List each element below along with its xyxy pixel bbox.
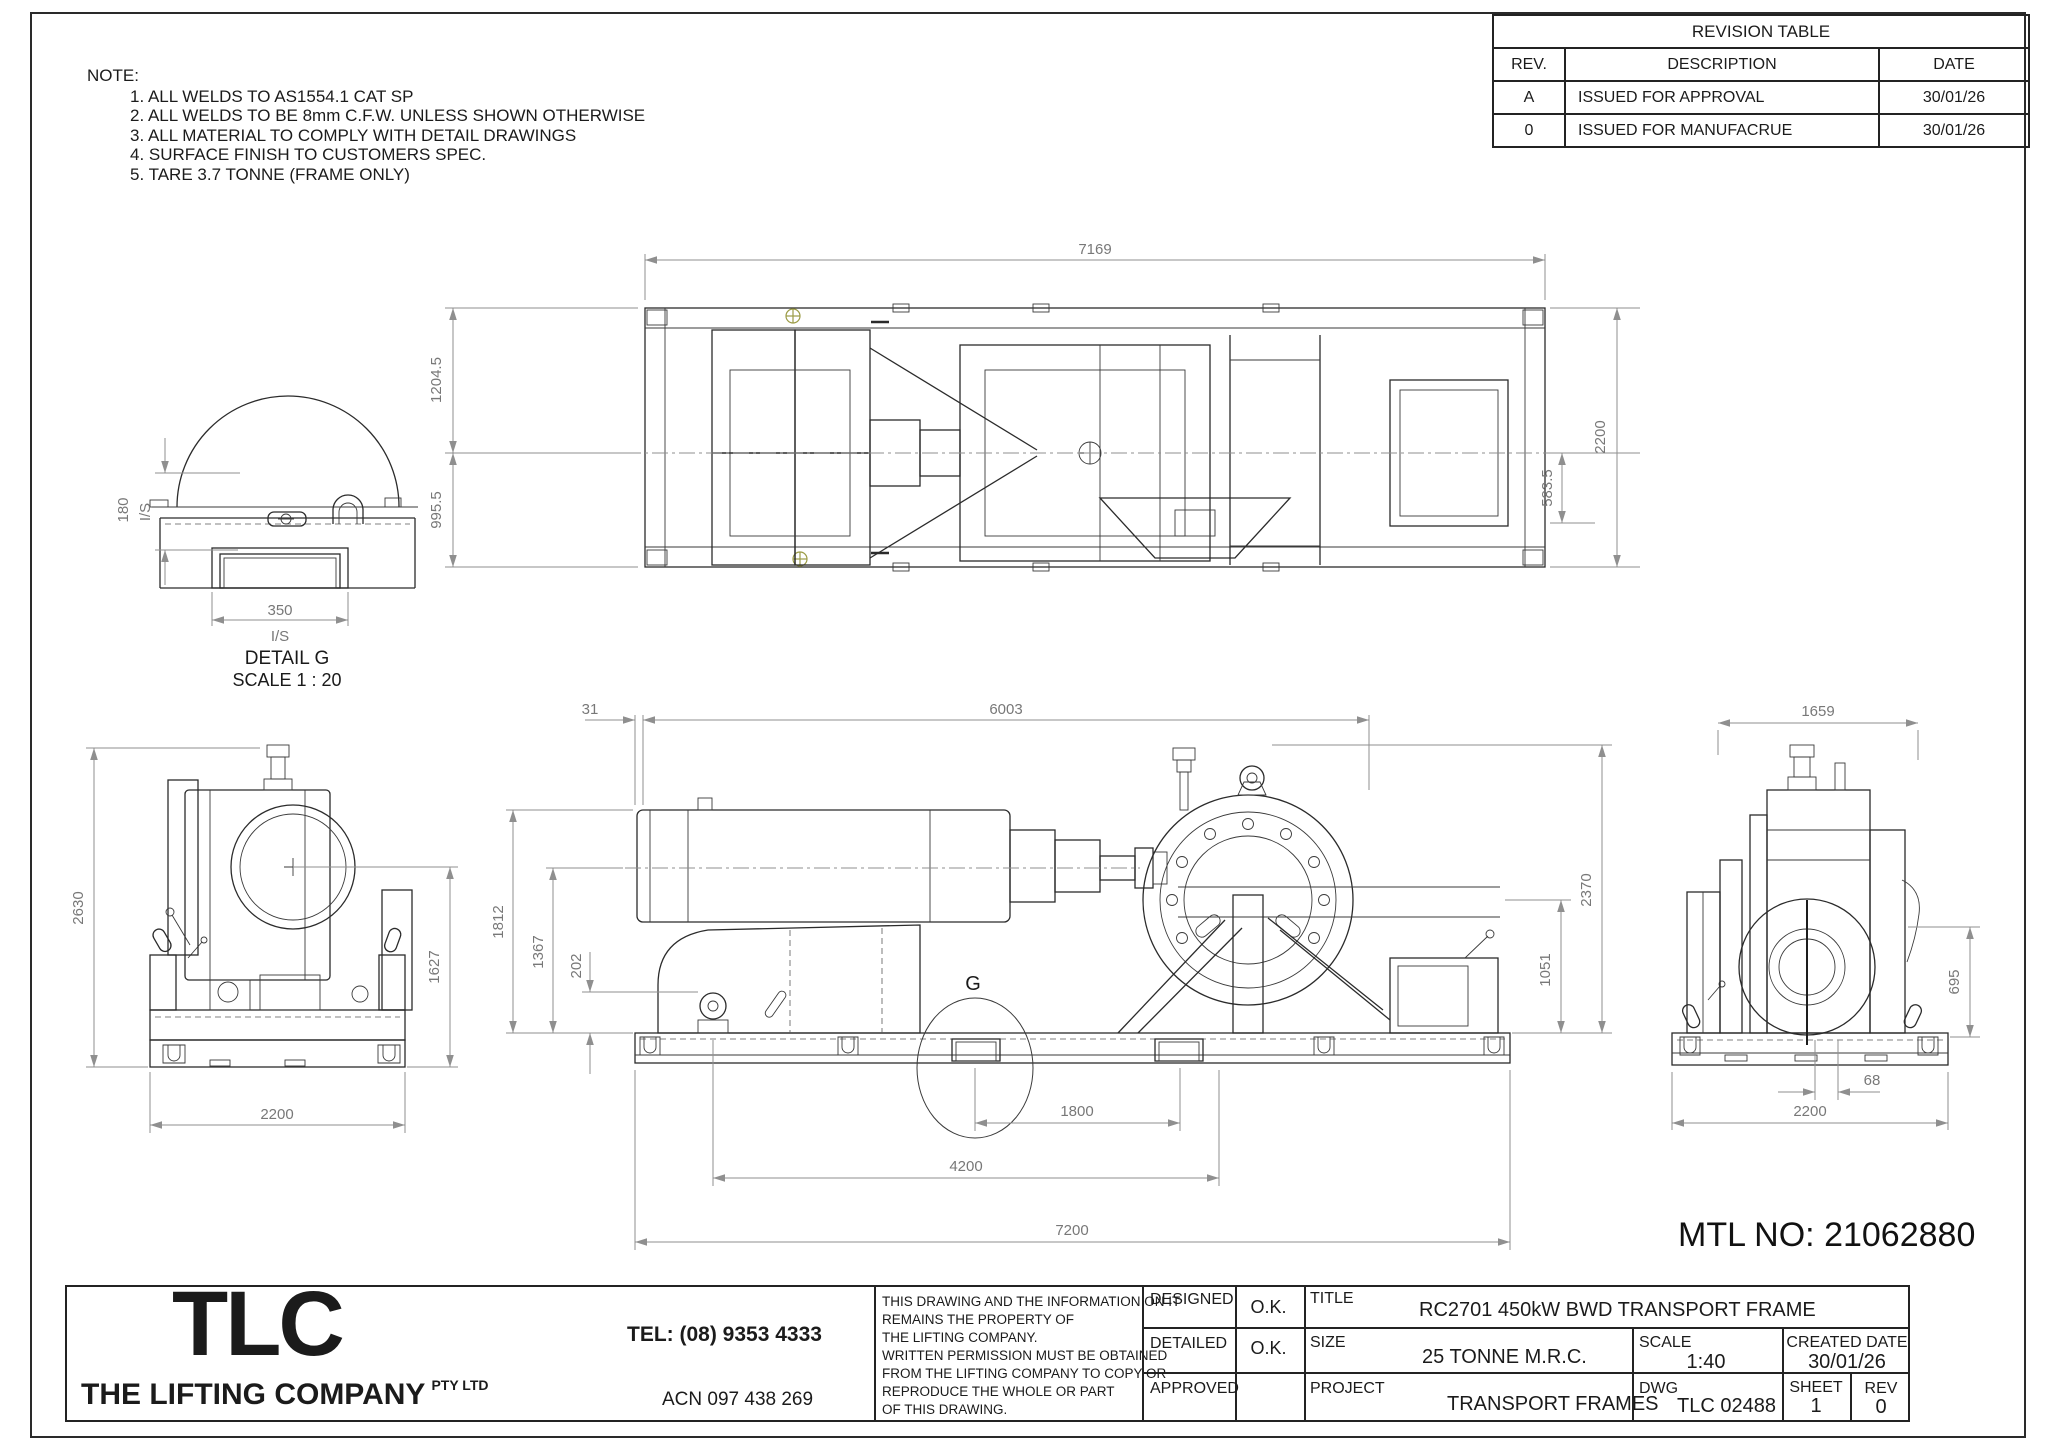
- elevation-geometry: [625, 748, 1510, 1063]
- dim-elev-overall-length: 7200: [1055, 1222, 1088, 1239]
- right-end-geometry: [1672, 745, 1948, 1065]
- dim-elev-length: 6003: [989, 701, 1022, 718]
- revision-row: A ISSUED FOR APPROVAL 30/01/26: [1494, 82, 2028, 115]
- drawing-sheet: NOTE: 1. ALL WELDS TO AS1554.1 CAT SP 2.…: [0, 0, 2048, 1448]
- designed-label: DESIGNED: [1150, 1291, 1234, 1309]
- mtl-number: MTL NO: 21062880: [1678, 1216, 1975, 1255]
- dim-detail-height-note: I/S: [137, 503, 154, 521]
- dwg-label: DWG: [1639, 1380, 1678, 1398]
- left-end-dimensions: 2630 1627 2200: [70, 748, 458, 1133]
- elevation-view: G 31 6003 1812 1367 202 2370: [490, 690, 1710, 1260]
- scale-value: 1:40: [1632, 1351, 1780, 1374]
- dim-detail-width-note: I/S: [271, 628, 289, 645]
- dim-right-width: 2200: [1793, 1103, 1826, 1120]
- notes-heading: NOTE:: [87, 66, 645, 86]
- company-phone: TEL: (08) 9353 4333: [627, 1323, 822, 1347]
- dim-elev-pocket-spacing: 1800: [1060, 1103, 1093, 1120]
- created-date-label: CREATED DATE: [1784, 1334, 1910, 1352]
- plan-view-drawing: 7169 1204.5 995.5 583.5 2200: [400, 240, 1660, 585]
- title-block-divider: [1304, 1287, 1306, 1420]
- dim-elev-cyl-height: 1812: [490, 905, 507, 938]
- description-col-header: DESCRIPTION: [1566, 49, 1880, 80]
- plan-dimensions: 7169 1204.5 995.5 583.5 2200: [428, 241, 1640, 567]
- date-cell: 30/01/26: [1880, 82, 2028, 113]
- title-block-divider: [874, 1287, 876, 1420]
- date-cell: 30/01/26: [1880, 115, 2028, 146]
- plan-frame-geometry: [625, 304, 1565, 571]
- dim-left-width: 2200: [260, 1106, 293, 1123]
- sheet-value: 1: [1784, 1395, 1848, 1418]
- dim-right-drum-height: 695: [1946, 969, 1963, 994]
- company-name: THE LIFTING COMPANY: [81, 1378, 425, 1411]
- dim-plan-half-top: 1204.5: [428, 357, 445, 403]
- dwg-number: TLC 02488: [1677, 1395, 1776, 1418]
- size-label: SIZE: [1310, 1334, 1346, 1352]
- dim-elev-lug-spacing: 4200: [949, 1158, 982, 1175]
- dim-elev-offset: 31: [582, 701, 599, 718]
- revision-table: REVISION TABLE REV. DESCRIPTION DATE A I…: [1492, 14, 2030, 148]
- copyright-disclaimer: THIS DRAWING AND THE INFORMATION ON IT R…: [882, 1293, 1180, 1419]
- date-col-header: DATE: [1880, 49, 2028, 80]
- note-item: 4. SURFACE FINISH TO CUSTOMERS SPEC.: [130, 145, 645, 165]
- dim-right-offset: 68: [1864, 1072, 1881, 1089]
- note-item: 2. ALL WELDS TO BE 8mm C.F.W. UNLESS SHO…: [130, 106, 645, 126]
- dim-detail-width: 350: [267, 602, 292, 619]
- notes-block: NOTE: 1. ALL WELDS TO AS1554.1 CAT SP 2.…: [87, 66, 645, 184]
- note-item: 5. TARE 3.7 TONNE (FRAME ONLY): [130, 165, 645, 185]
- company-suffix: PTY LTD: [431, 1377, 488, 1393]
- right-end-view: 1659 695 68 2200: [1650, 700, 2048, 1140]
- detail-g-marker-label: G: [965, 973, 981, 995]
- title-label: TITLE: [1310, 1290, 1354, 1308]
- note-item: 3. ALL MATERIAL TO COMPLY WITH DETAIL DR…: [130, 126, 645, 146]
- dim-elev-drum-height: 1051: [1537, 953, 1554, 986]
- dim-right-body-width: 1659: [1801, 703, 1834, 720]
- company-acn: ACN 097 438 269: [662, 1389, 813, 1411]
- detail-g-title: DETAIL G: [245, 648, 329, 669]
- description-cell: ISSUED FOR MANUFACRUE: [1566, 115, 1880, 146]
- drawing-title: RC2701 450kW BWD TRANSPORT FRAME: [1419, 1299, 1816, 1322]
- dim-detail-height: 180: [115, 497, 132, 522]
- dim-plan-half-bottom: 995.5: [428, 491, 445, 529]
- dim-plan-length: 7169: [1078, 241, 1111, 258]
- dim-elev-overall-height: 2370: [1578, 873, 1595, 906]
- rev-cell: 0: [1494, 115, 1566, 146]
- project-value: TRANSPORT FRAMES: [1447, 1393, 1659, 1416]
- left-end-view: 2630 1627 2200: [60, 730, 480, 1140]
- revision-table-header-row: REV. DESCRIPTION DATE: [1494, 49, 2028, 82]
- dim-plan-width: 2200: [1592, 420, 1609, 453]
- revision-row: 0 ISSUED FOR MANUFACRUE 30/01/26: [1494, 115, 2028, 146]
- company-logo: TLC: [172, 1281, 342, 1368]
- detail-g-scale: SCALE 1 : 20: [232, 670, 341, 690]
- dim-plan-inner: 583.5: [1539, 469, 1556, 507]
- rev-cell: A: [1494, 82, 1566, 113]
- size-value: 25 TONNE M.R.C.: [1422, 1346, 1587, 1369]
- dim-left-frame-height: 1627: [426, 950, 443, 983]
- title-block: TLC THE LIFTING COMPANYPTY LTD TEL: (08)…: [65, 1285, 1910, 1422]
- detail-g-dimensions: 180 I/S 350 I/S: [115, 438, 348, 645]
- note-item: 1. ALL WELDS TO AS1554.1 CAT SP: [130, 87, 645, 107]
- detailed-label: DETAILED: [1150, 1335, 1227, 1353]
- dim-left-height: 2630: [70, 891, 87, 924]
- right-end-dimensions: 1659 695 68 2200: [1672, 703, 1980, 1130]
- designed-value: O.K.: [1235, 1297, 1302, 1318]
- dim-elev-lug-height: 202: [568, 953, 585, 978]
- scale-label: SCALE: [1639, 1334, 1691, 1352]
- detailed-value: O.K.: [1235, 1338, 1302, 1359]
- detail-g-geometry: [150, 396, 418, 588]
- created-date-value: 30/01/26: [1784, 1351, 1910, 1374]
- detail-g-view: 180 I/S 350 I/S DETAIL G SCALE 1 : 20: [90, 420, 420, 690]
- revision-table-title: REVISION TABLE: [1494, 16, 2028, 49]
- left-end-geometry: [150, 745, 412, 1067]
- title-block-divider: [1142, 1327, 1908, 1329]
- description-cell: ISSUED FOR APPROVAL: [1566, 82, 1880, 113]
- rev-value: 0: [1852, 1396, 1910, 1419]
- rev-col-header: REV.: [1494, 49, 1566, 80]
- project-label: PROJECT: [1310, 1380, 1385, 1398]
- corner-casting-mark-icon: [786, 309, 800, 323]
- dim-elev-centre-height: 1367: [530, 935, 547, 968]
- approved-label: APPROVED: [1150, 1380, 1239, 1398]
